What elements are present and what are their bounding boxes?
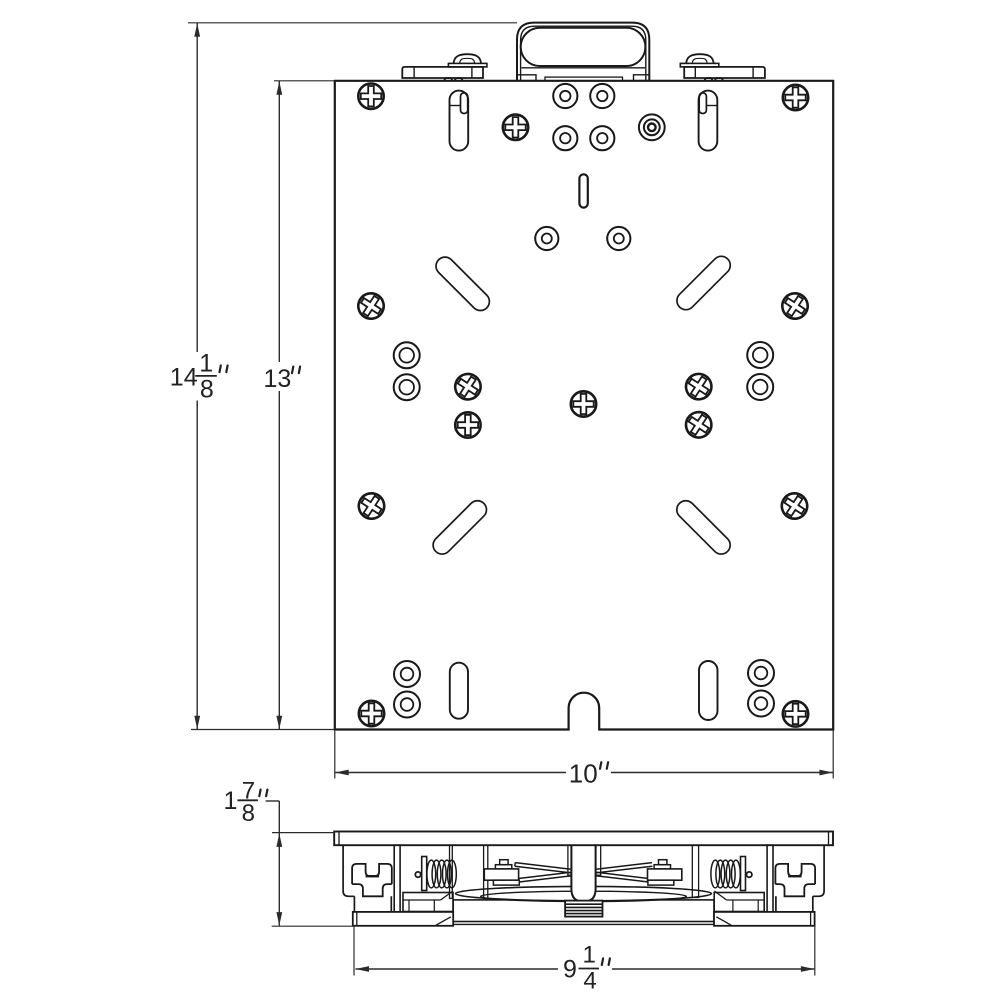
svg-text:8: 8 xyxy=(242,800,255,827)
svg-text:13: 13 xyxy=(264,365,292,393)
svg-text:1: 1 xyxy=(199,349,213,377)
svg-text:1: 1 xyxy=(224,787,238,815)
svg-text:1: 1 xyxy=(583,941,596,968)
svg-text:9: 9 xyxy=(563,956,577,984)
svg-text:8: 8 xyxy=(200,376,214,404)
svg-text:10: 10 xyxy=(569,759,598,789)
svg-text:4: 4 xyxy=(583,968,596,995)
svg-text:14: 14 xyxy=(170,364,198,392)
